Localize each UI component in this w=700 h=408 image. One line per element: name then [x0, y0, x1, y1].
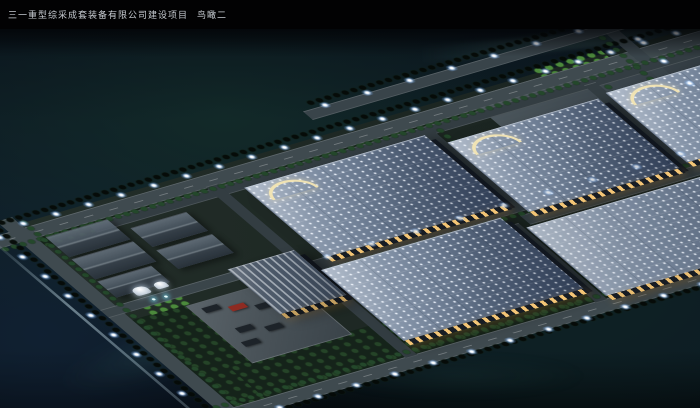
project-name: 三一重型综采成套装备有限公司建设项目: [8, 11, 188, 21]
industrial-site-plane: [12, 8, 700, 408]
letterbox-title-bar: 三一重型综采成套装备有限公司建设项目鸟瞰二: [0, 0, 700, 29]
view-label: 鸟瞰二: [197, 11, 227, 21]
rendering-canvas: 三一重型综采成套装备有限公司建设项目鸟瞰二: [0, 0, 700, 408]
page-title: 三一重型综采成套装备有限公司建设项目鸟瞰二: [8, 11, 227, 22]
